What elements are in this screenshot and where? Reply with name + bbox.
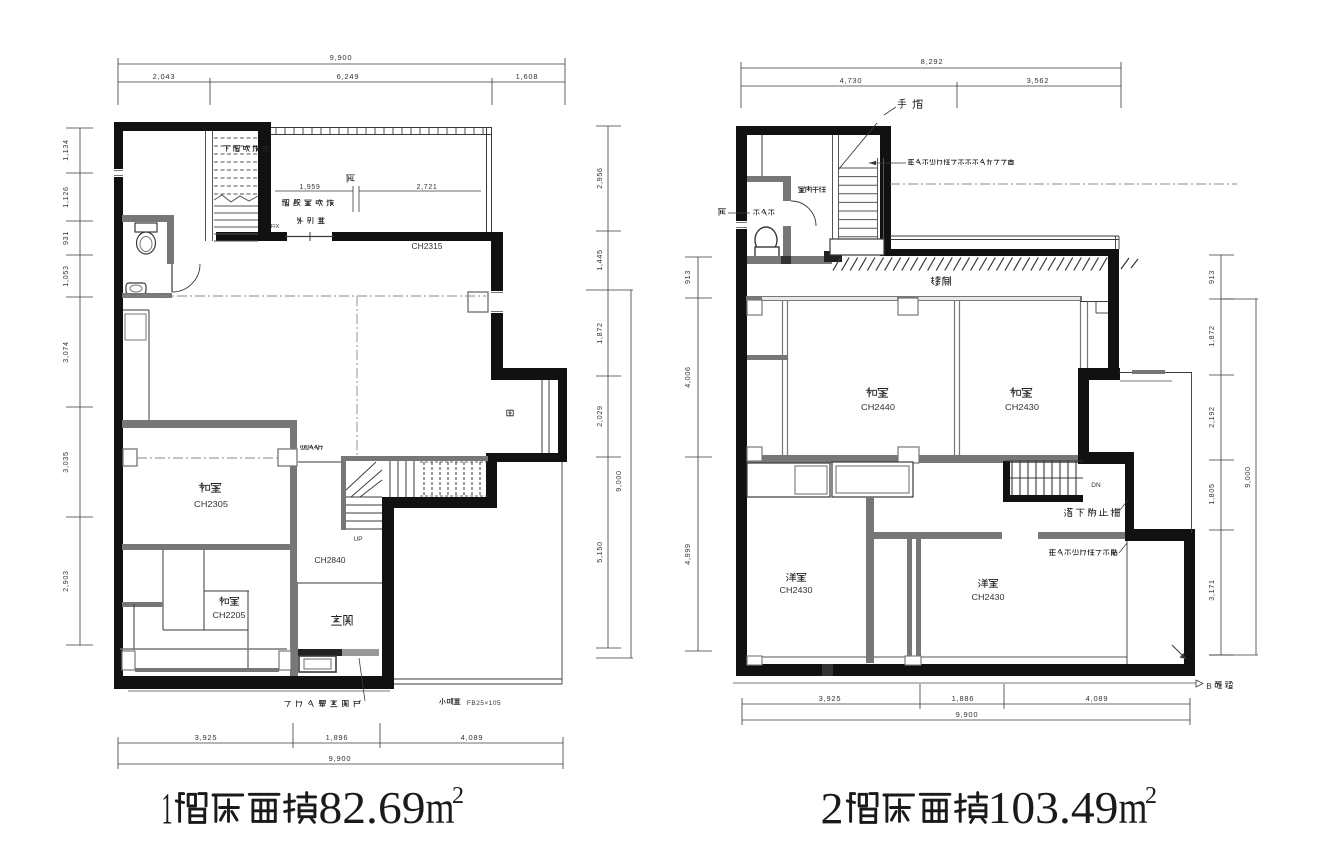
svg-text:B: B [1206, 682, 1211, 691]
svg-text:DN: DN [1091, 482, 1101, 489]
svg-text:3,171: 3,171 [1207, 579, 1216, 601]
svg-text:2,721: 2,721 [416, 184, 437, 191]
svg-text:CH2205: CH2205 [213, 611, 247, 620]
svg-text:1,805: 1,805 [1207, 483, 1216, 505]
svg-text:3,925: 3,925 [819, 694, 842, 703]
svg-text:1,872: 1,872 [1207, 325, 1216, 347]
svg-text:CH2315: CH2315 [412, 242, 444, 251]
svg-text:2,903: 2,903 [61, 570, 70, 592]
svg-text:CH2430: CH2430 [1005, 403, 1040, 412]
svg-text:UP: UP [353, 536, 362, 543]
svg-text:2: 2 [1145, 783, 1157, 809]
svg-text:9,900: 9,900 [329, 754, 352, 763]
svg-text:1,886: 1,886 [952, 694, 975, 703]
svg-text:1,053: 1,053 [61, 265, 70, 287]
svg-text:2,192: 2,192 [1207, 406, 1216, 428]
svg-text:9,000: 9,000 [1243, 466, 1252, 488]
svg-text:1,896: 1,896 [326, 733, 349, 742]
svg-text:9,900: 9,900 [330, 53, 353, 62]
svg-text:931: 931 [61, 231, 70, 245]
svg-text:4,089: 4,089 [461, 733, 484, 742]
svg-text:4,730: 4,730 [840, 76, 863, 85]
svg-text:4,089: 4,089 [1086, 694, 1109, 703]
svg-text:m: m [1119, 782, 1148, 833]
svg-text:1,959: 1,959 [299, 184, 320, 191]
svg-text:1,126: 1,126 [61, 186, 70, 208]
svg-text:9,000: 9,000 [614, 470, 623, 492]
svg-text:2,956: 2,956 [595, 167, 604, 189]
svg-text:103.49: 103.49 [988, 782, 1119, 833]
svg-text:4,999: 4,999 [683, 543, 692, 565]
svg-text:1,608: 1,608 [516, 72, 539, 81]
svg-text:9,900: 9,900 [956, 710, 979, 719]
svg-text:1,872: 1,872 [595, 322, 604, 344]
svg-text:2: 2 [821, 784, 844, 833]
svg-text:3,562: 3,562 [1027, 76, 1050, 85]
svg-text:6,249: 6,249 [337, 72, 360, 81]
svg-text:8,292: 8,292 [921, 57, 944, 66]
svg-text:CH2430: CH2430 [780, 586, 814, 595]
svg-text:2,043: 2,043 [153, 72, 176, 81]
svg-text:CH2840: CH2840 [315, 556, 347, 565]
svg-text:CH2305: CH2305 [194, 500, 229, 509]
svg-text:4,006: 4,006 [683, 366, 692, 388]
svg-text:2: 2 [452, 783, 464, 809]
svg-text:5,150: 5,150 [595, 541, 604, 563]
svg-text:1,134: 1,134 [61, 139, 70, 161]
svg-text:m: m [426, 782, 455, 833]
svg-text:3,925: 3,925 [195, 733, 218, 742]
svg-text:1: 1 [162, 784, 173, 833]
svg-text:FB25×105: FB25×105 [467, 700, 501, 707]
svg-text:CH2430: CH2430 [972, 593, 1006, 602]
svg-text:3,074: 3,074 [61, 341, 70, 363]
svg-text:913: 913 [683, 270, 692, 284]
svg-text:FIX: FIX [271, 224, 280, 230]
svg-text:82.69: 82.69 [319, 782, 426, 833]
svg-text:3,035: 3,035 [61, 451, 70, 473]
svg-text:1,445: 1,445 [595, 249, 604, 271]
svg-text:CH2440: CH2440 [861, 403, 896, 412]
svg-text:2,029: 2,029 [595, 405, 604, 427]
svg-text:913: 913 [1207, 270, 1216, 284]
